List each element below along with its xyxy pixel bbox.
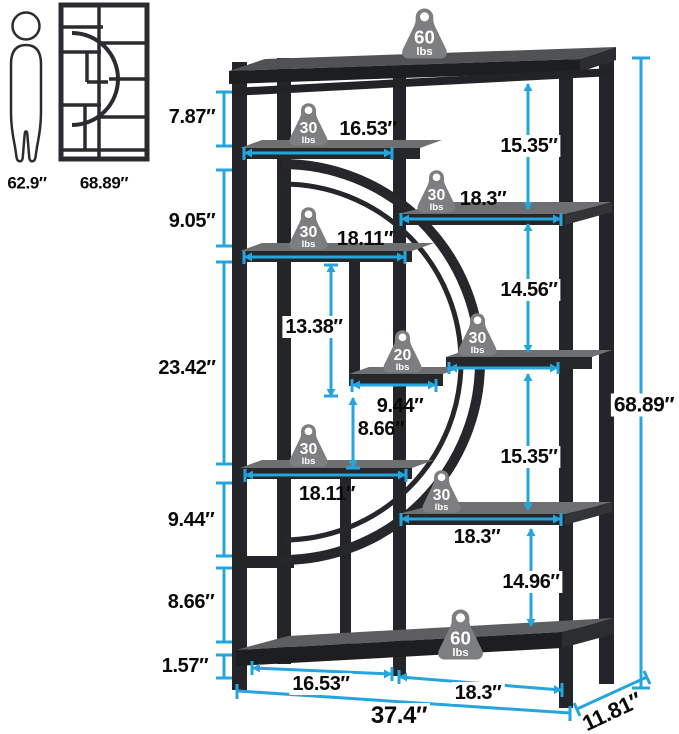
weight-badge-r1: 30lbs (413, 169, 460, 214)
weight-badge-l3: 30lbs (285, 423, 332, 468)
weight-badge-top: 60lbs (397, 7, 452, 60)
dim-width-l1: 16.53″ (339, 119, 396, 139)
dim-overall-width: 37.4″ (368, 703, 430, 729)
dim-width-l2: 18.11″ (337, 229, 393, 249)
weight-unit: lbs (452, 647, 468, 659)
dim-left-6: 1.57″ (162, 656, 209, 676)
dim-right-3: 15.35″ (497, 446, 560, 468)
weight-unit: lbs (396, 362, 410, 373)
dim-left-1: 7.87″ (169, 107, 216, 127)
weight-value: 60 (450, 627, 471, 648)
product-dimension-diagram: 60lbs 30lbs 30lbs 30lbs 30lbs 20lbs 30lb… (0, 0, 679, 734)
bookshelf-icon (61, 5, 147, 159)
dim-width-r2: 18.3″ (454, 527, 501, 547)
bottom-shelf (236, 618, 614, 666)
shelf-l1 (240, 140, 442, 159)
dim-inner-v1: 13.38″ (282, 316, 345, 338)
weight-badge-l2: 30lbs (285, 206, 332, 251)
dim-right-1: 15.35″ (497, 135, 560, 157)
weight-value: 60 (414, 26, 435, 47)
dim-width-b1: 16.53″ (289, 673, 352, 695)
dim-right-2: 14.56″ (497, 279, 560, 301)
weight-unit: lbs (430, 202, 444, 213)
weight-unit: lbs (302, 239, 316, 250)
person-icon (11, 13, 41, 162)
dim-left-2: 9.05″ (169, 211, 216, 231)
dim-overall-height: 68.89″ (611, 394, 677, 417)
weight-unit: lbs (435, 502, 449, 513)
weight-unit: lbs (302, 135, 316, 146)
dim-width-r1: 18.3″ (460, 189, 507, 209)
dim-right-4: 14.96″ (499, 571, 562, 593)
unit-height-label: 68.89″ (80, 175, 128, 192)
dim-left-5: 8.66″ (168, 592, 215, 612)
dim-left-4: 9.44″ (168, 510, 215, 530)
dim-width-b2: 18.3″ (452, 682, 505, 704)
weight-badge-r2: 30lbs (418, 469, 465, 514)
weight-unit: lbs (416, 46, 432, 58)
weight-badge-l1: 30lbs (285, 102, 332, 147)
weight-badge-mr: 30lbs (454, 312, 501, 357)
weight-badge-bottom: 60lbs (433, 608, 488, 661)
weight-unit: lbs (471, 345, 485, 356)
bookshelf-structure (0, 0, 679, 734)
dim-left-3: 23.42″ (158, 358, 215, 378)
person-height-label: 62.9″ (7, 175, 46, 192)
dim-width-m: 9.44″ (377, 396, 424, 416)
weight-badge-m: 20lbs (379, 329, 426, 374)
weight-unit: lbs (302, 456, 316, 467)
dim-inner-v2: 8.66″ (358, 419, 405, 439)
dim-width-l3: 18.11″ (299, 484, 355, 504)
